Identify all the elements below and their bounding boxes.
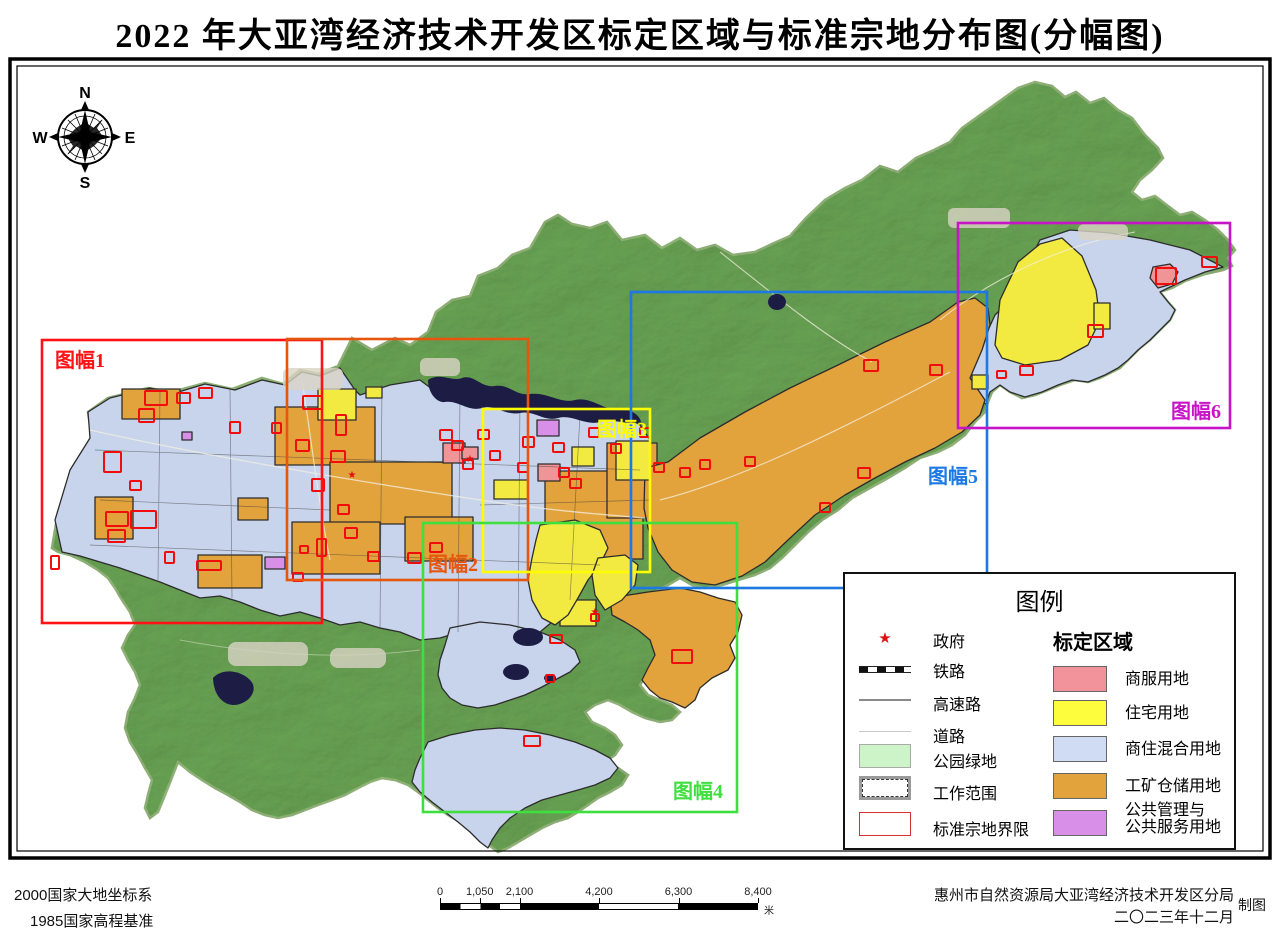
pond	[503, 664, 529, 680]
zone-residential	[366, 387, 382, 398]
scale-number: 6,300	[665, 886, 693, 898]
road-line-icon	[859, 731, 911, 732]
zone-residential	[972, 375, 988, 389]
sheet-frame-label-6: 图幅6	[1171, 395, 1221, 424]
park-green-swatch	[859, 744, 911, 768]
sheet-frame-label-2: 图幅2	[428, 548, 478, 577]
legend-label: 公园绿地	[933, 748, 997, 772]
scale-bar-strip	[440, 903, 758, 910]
compass-rose: N S W E	[32, 85, 135, 192]
pond	[513, 628, 543, 646]
zone-public	[182, 432, 192, 440]
producer-org: 惠州市自然资源局大亚湾经济技术开发区分局	[934, 884, 1234, 905]
legend-label: 工作范围	[933, 780, 997, 804]
zone-residential	[572, 447, 594, 466]
railway-line-icon	[859, 666, 911, 673]
zone-swatch-mixed	[1053, 736, 1107, 762]
scale-number: 2,100	[506, 886, 534, 898]
zone-label-line2: 公共服务用地	[1125, 819, 1221, 836]
work-scope-box-icon	[859, 776, 911, 800]
zone-residential	[494, 480, 528, 499]
legend-label: 高速路	[933, 691, 981, 715]
sheet-frame-label-1: 图幅1	[55, 344, 105, 373]
scale-number: 1,050	[466, 886, 494, 898]
scale-number: 0	[437, 886, 443, 898]
zone-label-line1: 公共管理与	[1125, 802, 1221, 819]
legend-label: 政府	[933, 628, 965, 652]
compass-s: S	[80, 175, 91, 192]
zone-swatch-commercial	[1053, 666, 1107, 692]
sheet-frame-label-5: 图幅5	[928, 460, 978, 489]
highway-line-icon	[859, 699, 911, 701]
government-star: ★	[348, 470, 357, 481]
zone-swatch-industrial	[1053, 773, 1107, 799]
zone-label-two-line: 公共管理与 公共服务用地	[1125, 802, 1221, 836]
government-star-icon: ★	[859, 629, 911, 647]
compass-n: N	[79, 85, 91, 102]
zone-label: 商服用地	[1125, 671, 1189, 688]
credit-label: 制图	[1238, 895, 1266, 915]
legend-box: 图例 ★ 政府 铁路 高速路 道路 公园绿地 工作范围 标准宗地界限	[843, 572, 1236, 850]
zone-swatch-residential	[1053, 700, 1107, 726]
zone-label: 住宅用地	[1125, 705, 1189, 722]
sheet-frame-label-4: 图幅4	[673, 775, 723, 804]
scale-number: 8,400	[744, 886, 772, 898]
government-star: ★	[466, 454, 475, 465]
datum-line-2: 1985国家高程基准	[30, 910, 153, 929]
datum-line-1: 2000国家大地坐标系	[14, 884, 152, 905]
zone-swatch-public	[1053, 810, 1107, 836]
map-sheet-page: 2022 年大亚湾经济技术开发区标定区域与标准宗地分布图(分幅图)	[0, 0, 1280, 929]
scale-tick	[758, 898, 759, 903]
zone-public	[537, 420, 559, 436]
compass-e: E	[125, 130, 136, 147]
legend-label: 道路	[933, 723, 965, 747]
zone-label: 商住混合用地	[1125, 741, 1221, 758]
zone-industry	[238, 498, 268, 520]
zone-public	[265, 557, 285, 569]
zone-industry	[198, 555, 262, 588]
scale-bar-unit: 米	[764, 902, 774, 917]
government-star: ★	[591, 607, 600, 618]
legend-label: 铁路	[933, 658, 965, 682]
producer-date: 二〇二三年十二月	[1114, 906, 1234, 927]
scale-number: 4,200	[585, 886, 613, 898]
lake	[768, 294, 786, 310]
scale-bar: 01,0502,1004,2006,3008,400 米	[440, 886, 758, 916]
compass-w: W	[32, 130, 48, 147]
legend-label: 标准宗地界限	[933, 816, 1029, 840]
zone-industry	[292, 522, 380, 574]
sheet-frame-label-3: 图幅3	[597, 413, 647, 442]
parcel-boundary-box-icon	[859, 812, 911, 836]
zone-header: 标定区域	[1053, 626, 1133, 655]
zone-label: 工矿仓储用地	[1125, 778, 1221, 795]
legend-title: 图例	[845, 582, 1234, 617]
standard-parcel-outline	[51, 556, 59, 569]
